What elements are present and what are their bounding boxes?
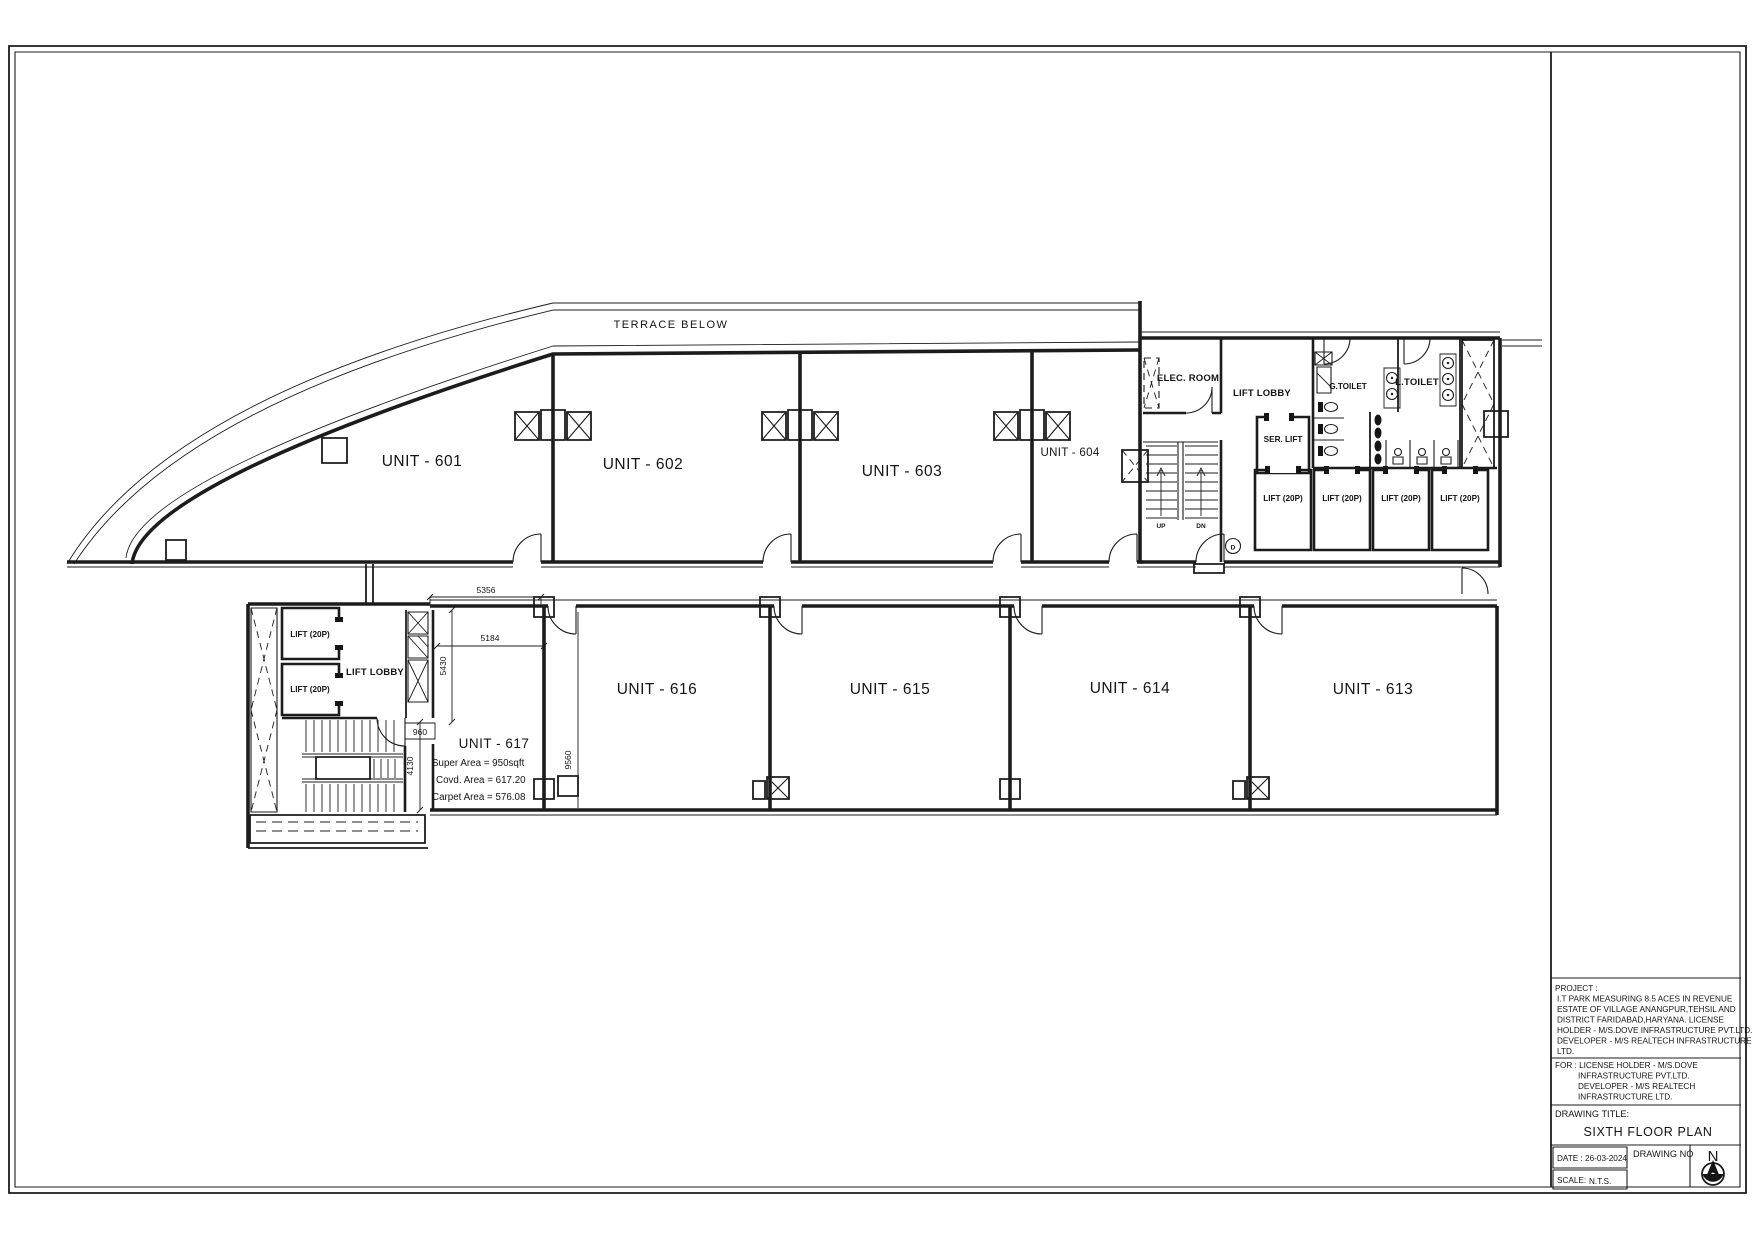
for-line-0: FOR : LICENSE HOLDER - M/S.DOVE [1555, 1061, 1698, 1070]
dim-960: 960 [413, 727, 427, 737]
shaft-right [1462, 340, 1494, 468]
project-line-4: HOLDER - M/S.DOVE INFRASTRUCTURE PVT.LTD… [1557, 1026, 1752, 1035]
north-arrow-icon: N [1702, 1148, 1724, 1185]
upper-staircase [1143, 440, 1221, 562]
dim-5430: 5430 [438, 656, 448, 675]
lower-core-balcony [248, 815, 428, 848]
wing-connector-wall [366, 564, 373, 604]
lift-upper-3-label: LIFT (20P) [1381, 494, 1421, 503]
project-line-3: DISTRICT FARIDABAD,HARYANA. LICENSE [1557, 1016, 1725, 1025]
lower-staircase [302, 718, 405, 812]
column-right-edge [1484, 411, 1508, 437]
project-line-2: ESTATE OF VILLAGE ANANGPUR,TEHSIL AND [1557, 1005, 1736, 1014]
scale-value: N.T.S. [1589, 1177, 1611, 1186]
duct-stack [408, 612, 428, 702]
for-line-3: INFRASTRUCTURE LTD. [1578, 1093, 1672, 1102]
lower-door-arcs [548, 606, 1282, 634]
lift-lower-1-label: LIFT (20P) [290, 630, 330, 639]
dim-5184: 5184 [481, 633, 500, 643]
drawing-sheet: UP DN D SER. LIFT LIFT (20P) LIFT (20P) … [0, 0, 1755, 1240]
column-unit-601 [322, 438, 347, 463]
project-line-1: I.T PARK MEASURING 8.5 ACES IN REVENUE [1557, 995, 1733, 1004]
unit-604-label: UNIT - 604 [1040, 447, 1099, 459]
sheet-border [9, 46, 1746, 1193]
lift-lower-2-label: LIFT (20P) [290, 685, 330, 694]
lift-upper-2-label: LIFT (20P) [1322, 494, 1362, 503]
column-tip [166, 540, 186, 560]
upper-units-top-wall [126, 342, 1140, 564]
lift-bank-lower [282, 608, 343, 715]
lift-lobby-upper-label: LIFT LOBBY [1233, 388, 1291, 399]
unit-617-carpet-area: Carpet Area = 576.08 [432, 792, 526, 803]
door-d-tag: D [1231, 545, 1236, 552]
project-line-6: LTD. [1557, 1047, 1574, 1056]
unit-601-label: UNIT - 601 [382, 453, 463, 470]
dim-9560: 9560 [563, 750, 573, 769]
ladies-toilet-fixtures [1386, 354, 1458, 468]
corridor-door-arc [1462, 568, 1488, 594]
gents-toilet-label: G.TOILET [1329, 382, 1367, 391]
lift-upper-1-label: LIFT (20P) [1263, 494, 1303, 503]
lift-lobby-lower-label: LIFT LOBBY [346, 667, 404, 678]
upper-units-bottom-wall [67, 562, 1143, 567]
shaft-stair-left [1122, 450, 1148, 482]
unit-602-label: UNIT - 602 [603, 456, 684, 473]
column-unit-616 [558, 776, 578, 796]
upper-door-arcs [513, 534, 1137, 562]
unit-614-label: UNIT - 614 [1090, 680, 1171, 697]
stair-dn-label: DN [1196, 523, 1206, 530]
lower-wing-walls [430, 600, 1497, 815]
terrace-outline [67, 303, 1140, 564]
unit-617-covd-area: Covd. Area = 617.20 [436, 775, 526, 786]
date-value: DATE : 26-03-2024 [1557, 1154, 1627, 1163]
ladies-toilet-label: L.TOILET [1395, 377, 1439, 388]
stair-up-label: UP [1156, 523, 1166, 530]
unit-616-label: UNIT - 616 [617, 681, 698, 698]
scale-label: SCALE: [1557, 1176, 1586, 1185]
dim-5356: 5356 [477, 585, 496, 595]
drawing-title-label: DRAWING TITLE: [1555, 1109, 1629, 1119]
toilet-walls [1313, 338, 1497, 468]
drawing-no-label: DRAWING NO [1633, 1149, 1693, 1159]
unit-615-label: UNIT - 615 [850, 681, 931, 698]
for-line-2: DEVELOPER - M/S REALTECH [1578, 1082, 1695, 1091]
title-block-project: PROJECT : I.T PARK MEASURING 8.5 ACES IN… [1555, 984, 1752, 1056]
project-line-0: PROJECT : [1555, 984, 1598, 993]
lower-bottom-wall-columns [534, 777, 1269, 799]
unit-617-super-area: Super Area = 950sqft [432, 758, 525, 769]
unit-613-label: UNIT - 613 [1333, 681, 1414, 698]
elec-room-label: ELEC. ROOM [1157, 373, 1219, 384]
terrace-below-label: TERRACE BELOW [614, 319, 729, 331]
ser-lift-label: SER. LIFT [1264, 435, 1303, 444]
floor-plan-canvas: UP DN D SER. LIFT LIFT (20P) LIFT (20P) … [0, 0, 1755, 1240]
lower-core-shaft [251, 608, 277, 812]
project-line-5: DEVELOPER - M/S REALTECH INFRASTRUCTURE [1557, 1037, 1752, 1046]
title-block-for: FOR : LICENSE HOLDER - M/S.DOVE INFRASTR… [1555, 1061, 1698, 1102]
drawing-title-value: SIXTH FLOOR PLAN [1583, 1125, 1712, 1139]
lift-upper-4-label: LIFT (20P) [1440, 494, 1480, 503]
unit-617-label: UNIT - 617 [459, 736, 530, 751]
unit-603-label: UNIT - 603 [862, 463, 943, 480]
for-line-1: INFRASTRUCTURE PVT.LTD. [1578, 1072, 1690, 1081]
dim-4130: 4130 [405, 756, 415, 775]
lift-bank-upper [1255, 466, 1488, 550]
